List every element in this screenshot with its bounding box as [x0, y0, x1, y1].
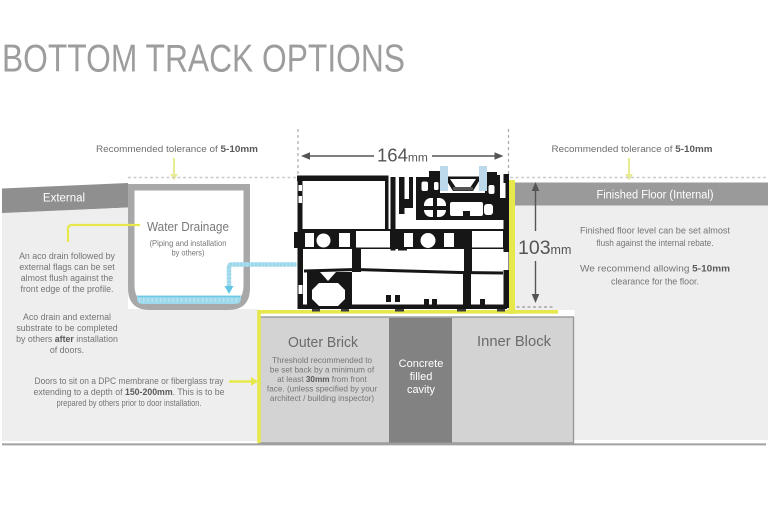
svg-text:front edge of the profile.: front edge of the profile.: [21, 284, 114, 294]
svg-text:Threshold recommended to: Threshold recommended to: [272, 356, 373, 365]
svg-text:of doors.: of doors.: [50, 345, 84, 355]
svg-text:Doors to sit on a DPC membrane: Doors to sit on a DPC membrane or fiberg…: [35, 376, 224, 386]
svg-text:by others after installation: by others after installation: [16, 334, 118, 344]
svg-text:face. (unless specified by you: face. (unless specified by your: [267, 385, 377, 394]
svg-text:prepared by others prior to do: prepared by others prior to door install…: [57, 398, 202, 408]
svg-text:cavity: cavity: [407, 384, 436, 396]
svg-text:clearance for the floor.: clearance for the floor.: [611, 277, 699, 287]
svg-text:flush against the internal reb: flush against the internal rebate.: [597, 238, 714, 248]
svg-text:be set back by a minimum of: be set back by a minimum of: [270, 366, 375, 375]
svg-text:BOTTOM TRACK OPTIONS: BOTTOM TRACK OPTIONS: [2, 38, 405, 81]
svg-text:Outer Brick: Outer Brick: [288, 334, 358, 351]
svg-text:almost flush against the: almost flush against the: [21, 273, 114, 283]
svg-text:filled: filled: [410, 371, 433, 383]
svg-text:architect / building inspector: architect / building inspector): [270, 394, 374, 403]
svg-text:Finished floor level can be se: Finished floor level can be set almost: [580, 226, 730, 236]
svg-text:external flags can be set: external flags can be set: [19, 262, 115, 272]
svg-text:at least 30mm from front: at least 30mm from front: [277, 375, 367, 384]
svg-text:We recommend allowing 5-10mm: We recommend allowing 5-10mm: [580, 264, 730, 274]
svg-text:Inner Block: Inner Block: [477, 333, 551, 350]
svg-text:External: External: [43, 193, 85, 205]
svg-text:Recommended tolerance of 5-10m: Recommended tolerance of 5-10mm: [552, 144, 713, 155]
svg-text:extending to a depth of 150-20: extending to a depth of 150-200mm. This …: [34, 387, 225, 397]
svg-text:Recommended tolerance of 5-10m: Recommended tolerance of 5-10mm: [96, 144, 258, 155]
svg-text:Finished Floor (Internal): Finished Floor (Internal): [597, 190, 714, 202]
svg-text:Concrete: Concrete: [399, 358, 444, 370]
svg-text:by others): by others): [172, 249, 205, 258]
svg-text:An aco drain followed by: An aco drain followed by: [19, 251, 115, 261]
svg-text:substrate to be completed: substrate to be completed: [16, 323, 117, 333]
svg-text:Water Drainage: Water Drainage: [147, 219, 229, 234]
svg-text:(Piping and installation: (Piping and installation: [150, 239, 227, 248]
svg-text:Aco drain and external: Aco drain and external: [23, 312, 111, 322]
